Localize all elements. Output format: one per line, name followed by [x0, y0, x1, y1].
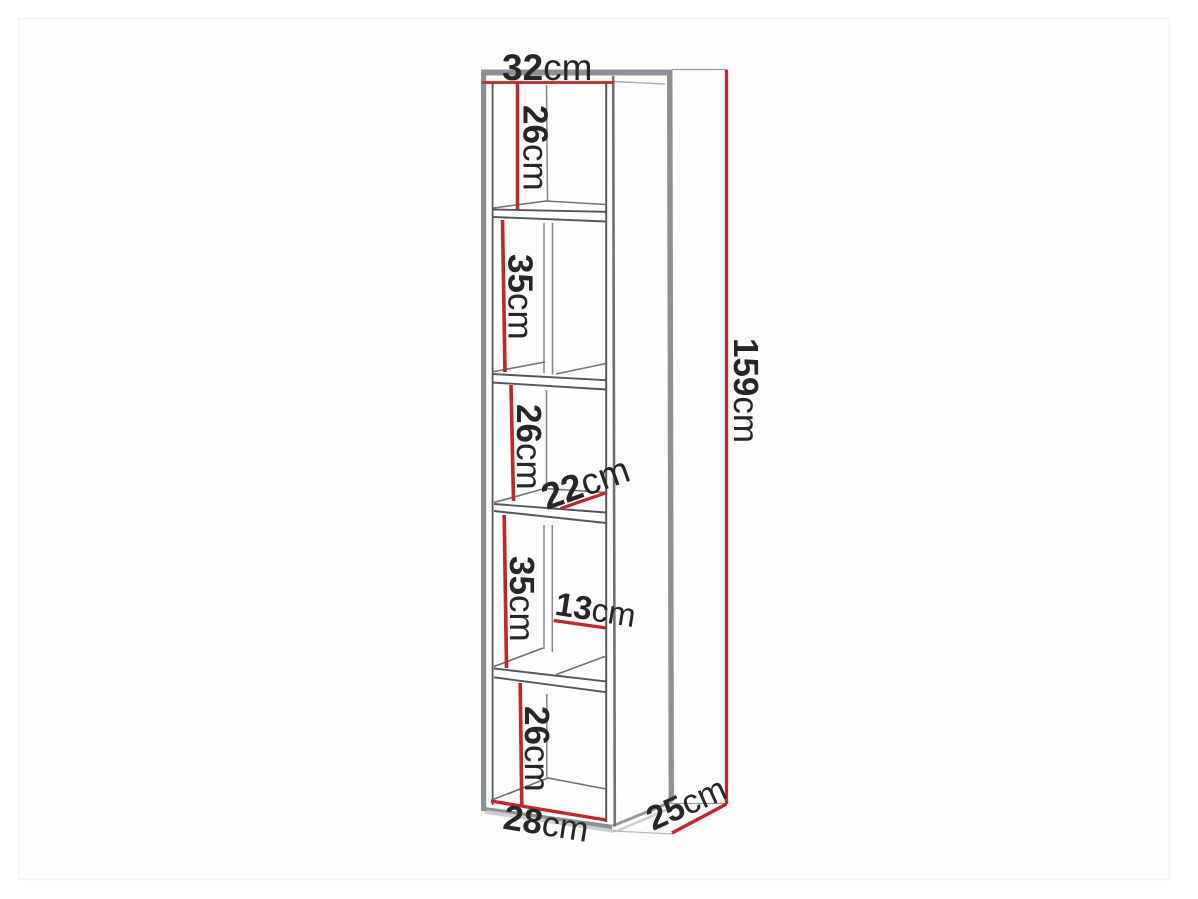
svg-text:26cm: 26cm — [516, 105, 555, 191]
svg-text:159cm: 159cm — [726, 338, 765, 443]
svg-text:35cm: 35cm — [501, 254, 540, 340]
svg-text:32cm: 32cm — [502, 47, 592, 88]
svg-text:26cm: 26cm — [517, 706, 556, 792]
svg-text:35cm: 35cm — [502, 556, 541, 642]
